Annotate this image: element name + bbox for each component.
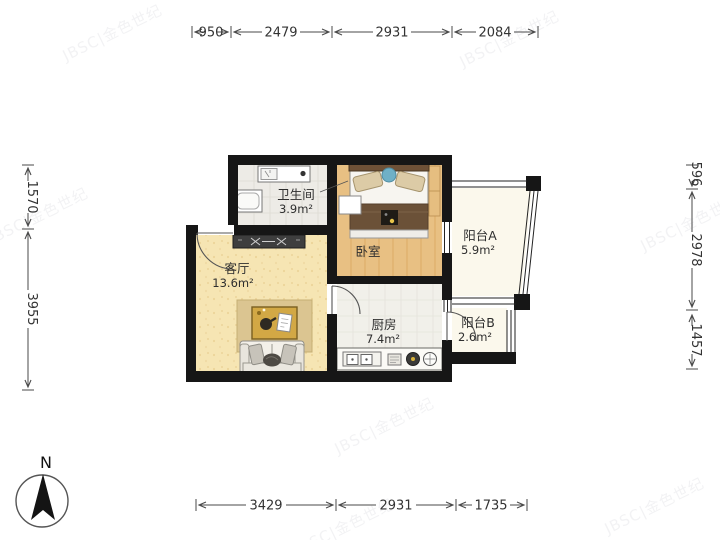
dim-right-1: 596 bbox=[688, 162, 703, 187]
compass-needle-icon bbox=[31, 474, 55, 520]
dim-top-2: 2479 bbox=[264, 26, 297, 41]
dim-top-1: 950 bbox=[199, 26, 224, 41]
wall-balcony-b-bottom bbox=[442, 352, 516, 364]
dim-bottom-2: 2931 bbox=[379, 499, 412, 514]
bedroom-balcony-door-opening bbox=[442, 222, 452, 253]
sofa bbox=[240, 341, 304, 375]
wall-bedroom-left bbox=[327, 155, 337, 284]
dim-left-1: 1570 bbox=[24, 180, 39, 213]
wall-bathroom-bottom bbox=[234, 225, 337, 235]
magazine bbox=[277, 313, 292, 332]
dim-right-3: 1457 bbox=[688, 323, 703, 356]
bed-foot-runner bbox=[350, 230, 428, 238]
balcony-a-top-window bbox=[452, 181, 527, 187]
bathroom-label: 卫生间 bbox=[277, 187, 315, 202]
balcony-a-label: 阳台A bbox=[463, 228, 497, 243]
wall-bathroom-left bbox=[228, 155, 238, 235]
bed-cushion bbox=[382, 168, 396, 182]
wall-top bbox=[228, 155, 452, 165]
wall-bottom bbox=[186, 371, 452, 382]
bedroom-furniture bbox=[339, 161, 440, 238]
balcony-b-side-window bbox=[507, 310, 515, 352]
sink bbox=[261, 169, 277, 180]
dim-top-4: 2084 bbox=[478, 26, 511, 41]
dim-left-2: 3955 bbox=[24, 292, 39, 325]
compass-north-label: N bbox=[40, 453, 52, 472]
teapot bbox=[260, 318, 272, 330]
floor-plan-page: 卫生间 3.9m² 卧室 阳台A 5.9m² 客厅 13.6m² 厨房 7.4m… bbox=[0, 0, 720, 540]
balcony-b-label: 阳台B bbox=[461, 315, 495, 330]
kitchen-area: 7.4m² bbox=[366, 332, 400, 346]
balcony-a-bottom-window bbox=[452, 298, 516, 304]
dim-bottom-1: 3429 bbox=[249, 499, 282, 514]
dim-bottom-3: 1735 bbox=[474, 499, 507, 514]
vanity-drain bbox=[300, 171, 305, 176]
kitchen-furniture bbox=[337, 348, 442, 370]
small-appliance bbox=[388, 354, 401, 365]
post-balcony-a-top bbox=[526, 176, 541, 191]
wall-right-upper bbox=[442, 155, 452, 222]
dim-right-2: 2978 bbox=[688, 233, 703, 266]
dim-top-3: 2931 bbox=[375, 26, 408, 41]
bathroom-area: 3.9m² bbox=[279, 202, 313, 216]
compass: N bbox=[16, 453, 68, 527]
bathtub-basin bbox=[237, 193, 259, 209]
bed-tray bbox=[381, 210, 398, 225]
balcony-b-area: 2.6m² bbox=[458, 330, 492, 344]
wall-bedroom-bottom bbox=[327, 276, 452, 284]
bedroom-label: 卧室 bbox=[355, 244, 380, 259]
post-balcony-a-bottom bbox=[514, 294, 530, 310]
wall-right-middle bbox=[442, 253, 452, 300]
balcony-a-area: 5.9m² bbox=[461, 243, 495, 257]
wall-left bbox=[186, 225, 196, 382]
nightstand bbox=[339, 196, 361, 214]
living-area: 13.6m² bbox=[212, 276, 253, 290]
wall-kitchen-left bbox=[327, 314, 337, 372]
kitchen-label: 厨房 bbox=[371, 317, 396, 332]
floor-plan-drawing: 卫生间 3.9m² 卧室 阳台A 5.9m² 客厅 13.6m² 厨房 7.4m… bbox=[0, 0, 720, 540]
living-label: 客厅 bbox=[224, 261, 249, 276]
sofa-blanket bbox=[263, 354, 281, 367]
